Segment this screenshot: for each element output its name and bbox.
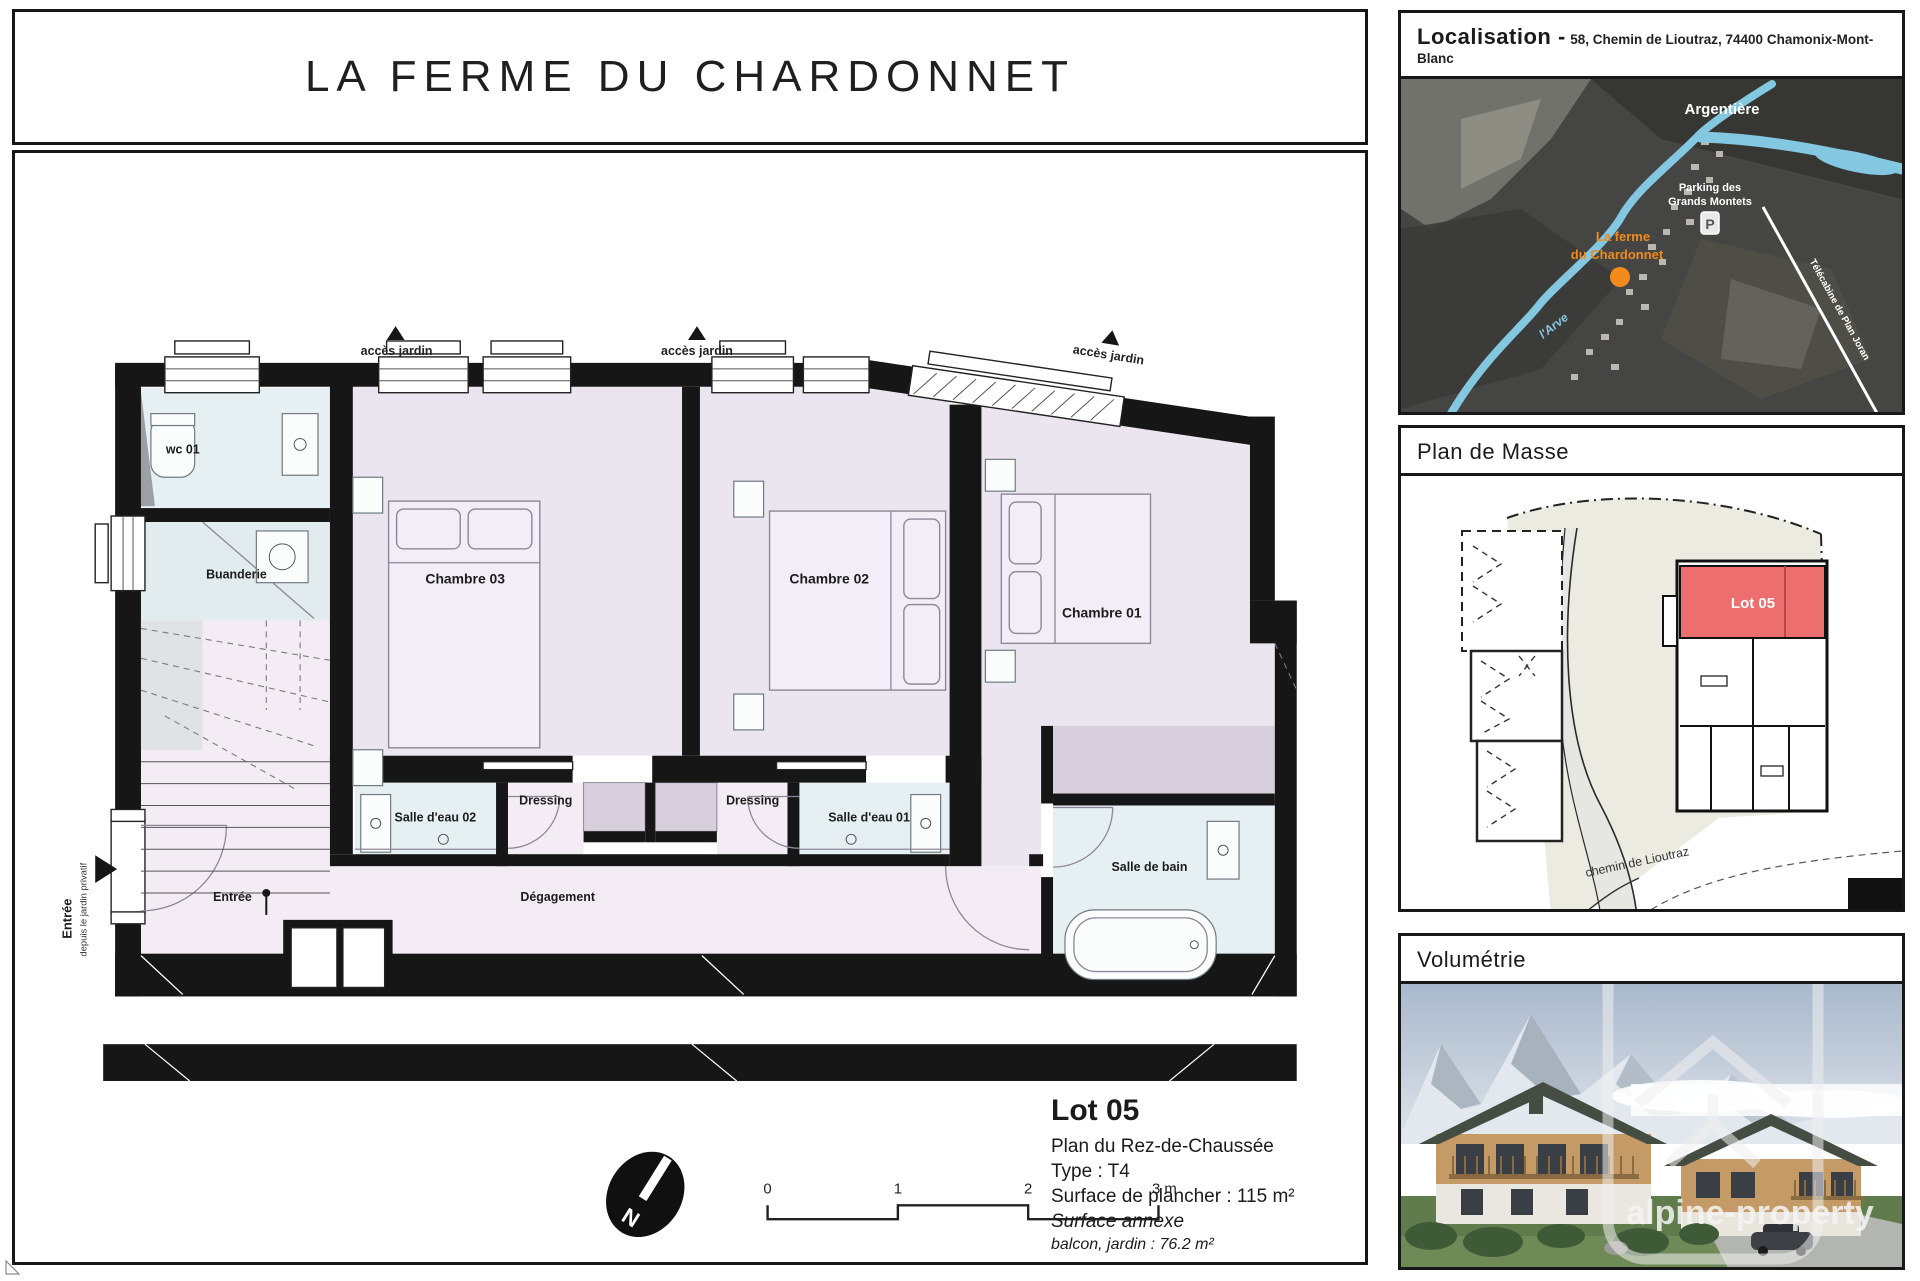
room-label-salle-eau-02: Salle d'eau 02 [395,810,477,824]
svg-text:Entrée: Entrée [59,899,74,939]
room-label-chambre-03: Chambre 03 [425,571,505,587]
plan-masse-title: Plan de Masse [1417,439,1569,464]
lot-name: Lot 05 [1051,1094,1371,1128]
svg-text:accès jardin: accès jardin [661,344,733,358]
sliding-door-chambre-03 [483,762,573,770]
map-label-town: Argentière [1684,101,1759,118]
window-top-c02-b [803,357,869,393]
room-label-buanderie: Buanderie [206,568,267,582]
room-label-dressing-right: Dressing [726,793,779,807]
map-label-property-1: La ferme [1596,229,1650,244]
room-label-wc01: wc 01 [165,442,200,456]
room-corridor [141,866,1041,954]
wall-sdb-left-lower [1041,877,1053,985]
lot-annexe-title: Surface annexe [1051,1211,1371,1233]
floorplan-panel: accès jardin accès jardin accès jardin E… [12,150,1368,1265]
closet-strip-2 [655,783,717,832]
closet-strip-1 [584,783,646,832]
wardrobe-chambre-01 [1053,726,1275,794]
triangle-icon [688,326,706,340]
localisation-title: Localisation - [1417,24,1566,49]
access-jardin-3: accès jardin [1072,325,1148,368]
room-label-salle-de-bain: Salle de bain [1112,860,1188,874]
volumetrie-title: Volumétrie [1417,947,1526,972]
svg-text:2: 2 [1024,1181,1032,1197]
localisation-map: Argentière Parking des Grands Montets P … [1401,79,1902,412]
map-label-parking-1: Parking des [1679,182,1741,194]
wall-right-upper [1250,417,1275,601]
lot-floor: Plan du Rez-de-Chaussée [1051,1136,1371,1158]
plan-masse-map: Lot 05 chemin de Lioutraz [1401,476,1902,909]
building-parking [1462,531,1562,841]
window-top-wc [165,341,259,393]
triangle-icon [387,326,405,340]
north-compass-icon: N [590,1137,700,1252]
room-label-entree: Entrée [213,890,252,904]
page-title: LA FERME DU CHARDONNET [305,52,1075,102]
svg-text:0: 0 [763,1181,771,1197]
sliding-door-chambre-02 [777,762,867,770]
svg-text:depuis le jardin privatif: depuis le jardin privatif [78,862,89,956]
entry-annotation: Entrée depuis le jardin privatif [59,855,117,956]
wall-corridor-top [330,854,950,866]
window-left-buanderie [95,516,145,591]
title-box: LA FERME DU CHARDONNET [12,9,1368,145]
watermark-text: alpine-property [1626,1194,1874,1232]
svg-text:accès jardin: accès jardin [1072,342,1145,367]
wall-c03-c02 [682,387,700,756]
wall-sdb-left-upper [1041,726,1053,804]
room-label-chambre-01: Chambre 01 [1062,604,1142,620]
plan-masse-panel: Plan de Masse [1398,425,1905,912]
wc-sink-icon [282,414,318,476]
lot-info: Lot 05 Plan du Rez-de-Chaussée Type : T4… [1051,1094,1371,1254]
lot-type: Type : T4 [1051,1161,1371,1183]
map-label-parking-2: Grands Montets [1668,196,1752,208]
wall-c02-c01 [950,405,982,867]
property-dot-icon [1610,267,1630,287]
wall-right-lower [1275,601,1297,997]
wall-under-wc [141,508,330,522]
triangle-icon [1101,329,1121,346]
room-label-degagement: Dégagement [520,890,595,904]
wall-sde02-right [496,783,508,867]
lot-surface: Surface de plancher : 115 m² [1051,1186,1371,1208]
svg-text:accès jardin: accès jardin [361,344,433,358]
room-label-chambre-02: Chambre 02 [789,571,869,587]
plan-masse-header: Plan de Masse [1401,428,1902,476]
volumetrie-panel: Volumétrie [1398,933,1905,1270]
volumetrie-render: alpine-property [1401,984,1902,1267]
localisation-panel: Localisation - 58, Chemin de Lioutraz, 7… [1398,10,1905,415]
wall-under-wardrobe [1053,794,1275,806]
terrace-edge-band [103,1044,1297,1081]
lot-annexe-detail: balcon, jardin : 76.2 m² [1051,1236,1371,1254]
wall-sde01-left [787,783,799,867]
window-top-c03-b [483,341,571,393]
room-label-dressing-left: Dressing [519,793,572,807]
lot-05-label: Lot 05 [1731,595,1775,612]
map-label-property-2: du Chardonnet [1571,247,1664,262]
page-corner-mark [4,1258,22,1276]
svg-text:P: P [1705,216,1714,232]
room-label-salle-eau-01: Salle d'eau 01 [828,810,910,824]
building-lot: Lot 05 [1663,561,1827,811]
corner-block [1848,878,1902,909]
volumetrie-header: Volumétrie [1401,936,1902,984]
svg-text:1: 1 [894,1181,902,1197]
localisation-header: Localisation - 58, Chemin de Lioutraz, 7… [1401,13,1902,79]
